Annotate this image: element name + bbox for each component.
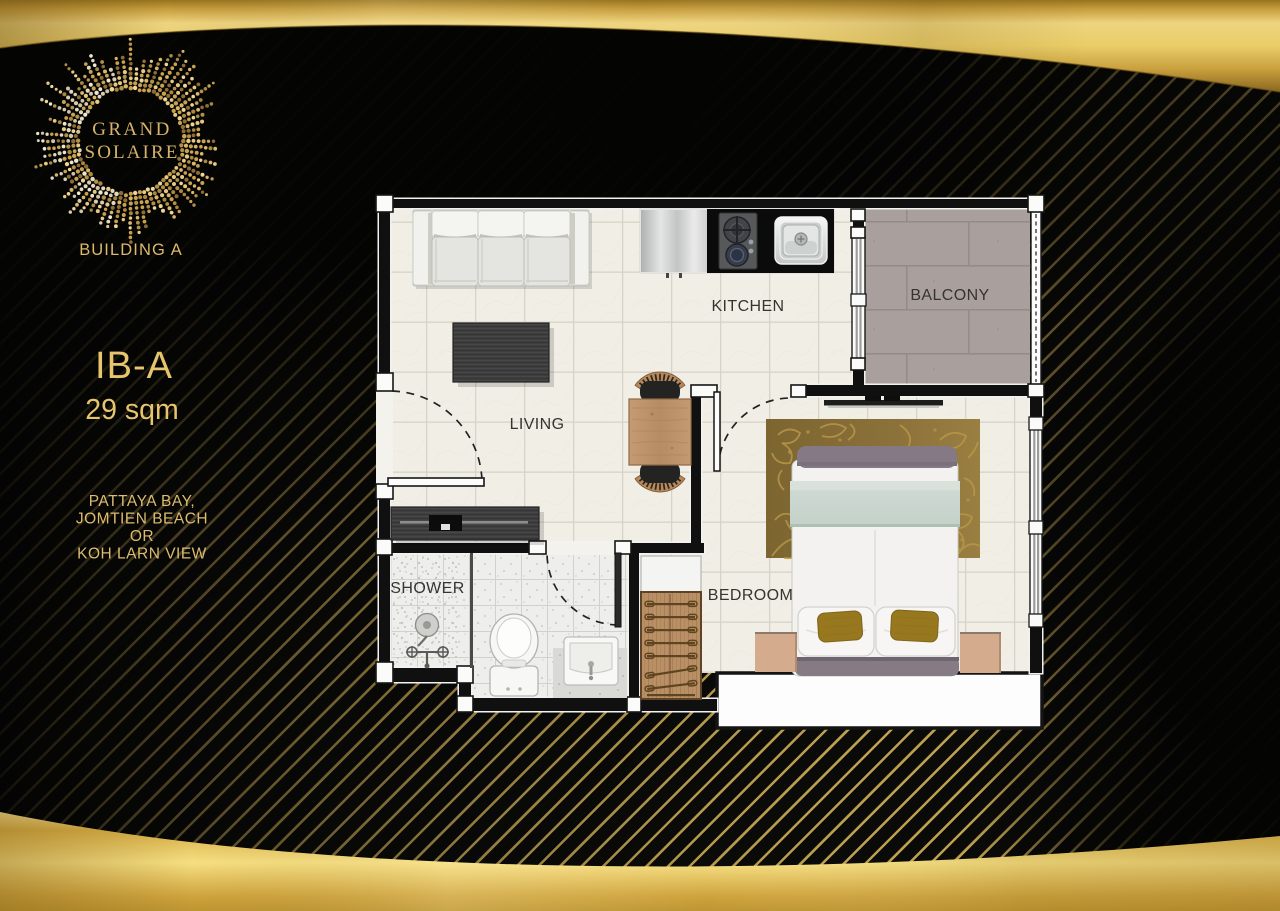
- svg-text:KOH LARN VIEW: KOH LARN VIEW: [77, 546, 207, 563]
- svg-text:BALCONY: BALCONY: [910, 287, 989, 304]
- svg-text:KITCHEN: KITCHEN: [711, 298, 784, 315]
- svg-text:SHOWER: SHOWER: [390, 580, 464, 597]
- svg-text:BUILDING A: BUILDING A: [79, 241, 183, 259]
- svg-text:IB-A: IB-A: [95, 345, 173, 387]
- svg-text:OR: OR: [130, 528, 154, 545]
- svg-text:LIVING: LIVING: [510, 416, 565, 433]
- svg-text:JOMTIEN BEACH: JOMTIEN BEACH: [76, 511, 208, 528]
- svg-text:BEDROOM: BEDROOM: [708, 587, 793, 604]
- svg-text:GRAND: GRAND: [92, 119, 172, 140]
- svg-text:29 sqm: 29 sqm: [85, 394, 178, 426]
- svg-text:SOLAIRE: SOLAIRE: [85, 142, 180, 163]
- svg-text:PATTAYA BAY,: PATTAYA BAY,: [89, 493, 196, 510]
